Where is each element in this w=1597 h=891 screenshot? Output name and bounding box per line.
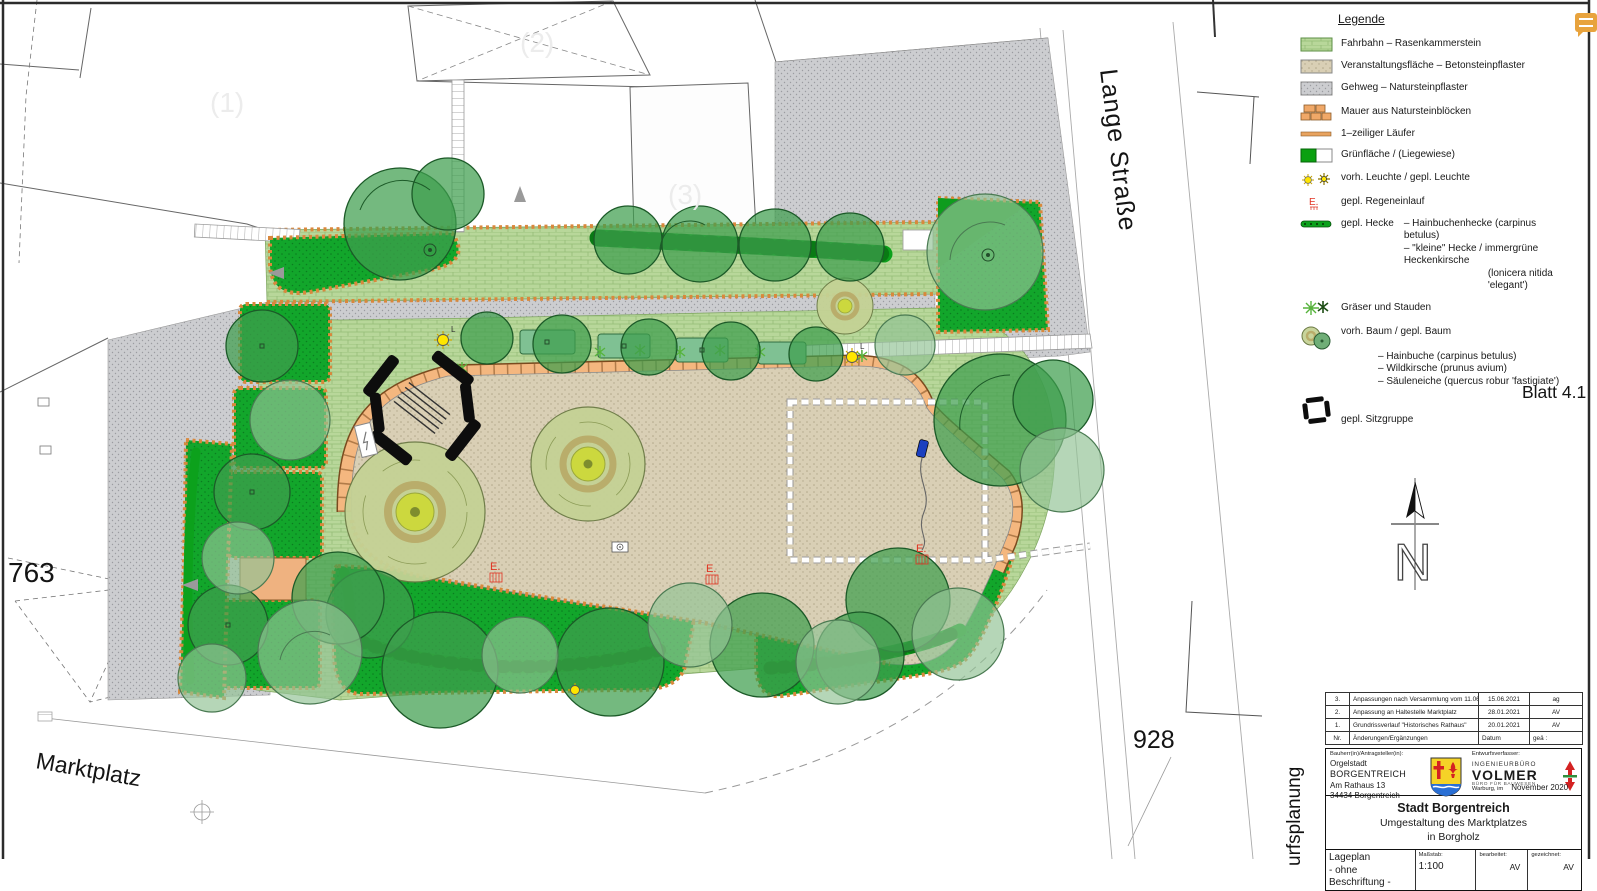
project-title: Stadt Borgentreich Umgestaltung des Mark… xyxy=(1326,796,1581,850)
label-928-leader xyxy=(1128,757,1171,846)
scale-cell: Maßstab: 1:100 xyxy=(1416,850,1477,890)
revision-table: 3. Anpassungen nach Versammlung vom 11.0… xyxy=(1325,692,1583,745)
parcel-label-928: 928 xyxy=(1133,726,1175,754)
legend-item-gruenflaeche: Grünfläche / (Liegewiese) xyxy=(1300,148,1562,163)
doc-title-cell: Lageplan - ohne Beschriftung - xyxy=(1326,850,1416,890)
title-block-main: Bauherr(in)/Antragsteller(in): Orgelstad… xyxy=(1325,748,1582,891)
parcel-faint-label: (3) xyxy=(668,179,702,210)
drain-label: E. xyxy=(490,561,500,573)
event-swatch-icon xyxy=(1300,59,1334,74)
legend-item-veranstaltungsflaeche: Veranstaltungsfläche – Betonsteinpflaste… xyxy=(1300,59,1562,74)
marktplatz-curb xyxy=(45,718,705,793)
revision-header-row: Nr. Änderungen/Ergänzungen Datum geä : xyxy=(1326,732,1583,745)
direction-arrow xyxy=(514,186,526,202)
hedge-bar-icon xyxy=(1300,218,1334,230)
walk-swatch-icon xyxy=(1300,81,1334,96)
revision-row: 2. Anpassung an Haltestelle Marktplatz 2… xyxy=(1326,706,1583,719)
plan-sheet: { "colors": { "road_green": "#b8d79a", "… xyxy=(0,0,1597,859)
legend-panel: Legende Fahrbahn – Rasenkammerstein Vera… xyxy=(1300,12,1562,426)
drawn-cell: gezeichnet: AV xyxy=(1528,850,1581,890)
north-arrow: N xyxy=(1391,478,1439,592)
drain-label: E. xyxy=(916,543,926,555)
parcel-label-763: 763 xyxy=(8,557,55,588)
drain-mark-icon: E. xyxy=(1300,195,1334,211)
wall-blocks-icon xyxy=(1300,103,1334,121)
drain-label: E. xyxy=(706,563,716,575)
legend-item-graeser: Gräser und Stauden xyxy=(1300,299,1562,319)
ground-marker xyxy=(612,542,628,552)
revision-row: 1. Grundrissverlauf "Historisches Rathau… xyxy=(1326,719,1583,732)
street-label: Lange Straße xyxy=(1094,67,1142,233)
legend-item-sitzgruppe: gepl. Sitzgruppe xyxy=(1300,394,1562,426)
legend-item-fahrbahn: Fahrbahn – Rasenkammerstein xyxy=(1300,37,1562,52)
legend-item-mauer: Mauer aus Natursteinblöcken xyxy=(1300,103,1562,121)
grasses-icon xyxy=(1300,299,1334,319)
legend-item-leuchte: vorh. Leuchte / gepl. Leuchte xyxy=(1300,170,1562,188)
legend-item-laeufer: 1–zeiliger Läufer xyxy=(1300,128,1562,141)
svg-text:E.: E. xyxy=(1309,197,1318,208)
north-letter: N xyxy=(1394,534,1432,592)
legend-item-gehweg: Gehweg – Natursteinpflaster xyxy=(1300,81,1562,96)
seating-square-icon xyxy=(1300,394,1334,426)
legend-item-baum: vorh. Baum / gepl. Baum – Hainbuche (car… xyxy=(1300,326,1562,389)
green-swatch-icon xyxy=(1300,148,1334,163)
annotation-comment-icon[interactable] xyxy=(1575,13,1597,32)
parcel-faint-label: (1) xyxy=(210,87,244,118)
client-section: Bauherr(in)/Antragsteller(in): Orgelstad… xyxy=(1326,749,1468,795)
designer-section: Entwurfsverfasser: INGENIEURBÜRO VOLMER … xyxy=(1468,749,1581,795)
phase-side-label: urfsplanung xyxy=(1284,767,1306,866)
parcel-faint-label: (2) xyxy=(520,27,554,58)
revision-row: 3. Anpassungen nach Versammlung vom 11.0… xyxy=(1326,693,1583,706)
borgentreich-crest-icon xyxy=(1430,757,1462,799)
lamp-label: L xyxy=(860,342,865,351)
title-block: 3. Anpassungen nach Versammlung vom 11.0… xyxy=(1325,692,1582,891)
legend-item-hecke: gepl. Hecke – Hainbuchenhecke (carpinus … xyxy=(1300,218,1562,293)
legend-title: Legende xyxy=(1338,12,1562,27)
edited-cell: bearbeitet: AV xyxy=(1476,850,1528,890)
legend-item-regeneinlauf: E. gepl. Regeneinlauf xyxy=(1300,195,1562,211)
lamp-stars-icon xyxy=(1300,170,1334,188)
marktplatz-label: Marktplatz xyxy=(34,747,143,791)
lamp-label: L xyxy=(451,325,456,334)
road-swatch-icon xyxy=(1300,37,1334,52)
trees-icon xyxy=(1300,326,1334,350)
runner-line-icon xyxy=(1300,130,1334,138)
